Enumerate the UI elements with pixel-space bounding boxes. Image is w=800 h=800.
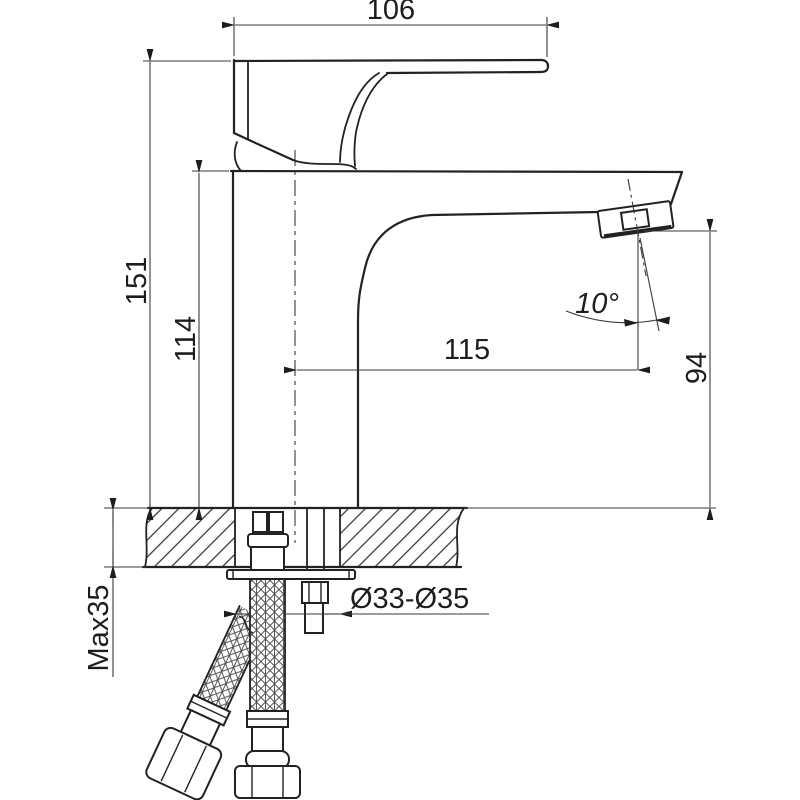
handle-lever <box>234 60 548 73</box>
handle-base-chamfer <box>234 133 293 160</box>
shank-tube <box>251 547 284 570</box>
deck-hatch-left <box>145 508 235 567</box>
deck-hatch-right <box>340 508 464 567</box>
horseshoe-washer <box>227 570 355 579</box>
dimension-max-thickness: Max35 <box>83 510 115 677</box>
body-top-edge <box>231 171 682 172</box>
cartridge-cap-left <box>235 142 241 171</box>
hose-hex-nut <box>235 766 300 798</box>
stud-lower-thread <box>305 603 323 633</box>
handle-neck-right-curve <box>354 74 387 166</box>
spout-right-slant-edge <box>671 172 682 204</box>
dimension-label-151: 151 <box>121 257 153 305</box>
dimension-label-94: 94 <box>681 352 713 384</box>
dimension-label-106: 106 <box>367 0 415 26</box>
angle-slanted-line <box>640 238 659 331</box>
dimension-body-height: 114 <box>170 171 229 507</box>
shank-inlet-port <box>253 512 267 532</box>
dimension-spout-angle: 10° <box>566 231 670 370</box>
shank-collar <box>248 534 288 547</box>
hose-braid-texture <box>250 578 285 712</box>
hose-tube <box>252 727 283 752</box>
angle-arrow <box>624 319 638 327</box>
dimension-label-diameter: Ø33-Ø35 <box>350 583 469 615</box>
dimension-spout-reach: 115 <box>297 334 637 370</box>
technical-drawing-page: 106 151 114 Max35 115 94 <box>0 0 800 800</box>
counter-deck <box>104 508 716 567</box>
dimension-label-10deg: 10° <box>575 288 619 320</box>
dimension-handle-length: 106 <box>234 0 547 57</box>
dimension-overall-height: 151 <box>121 61 231 507</box>
dimension-outlet-height: 94 <box>644 231 717 507</box>
dimension-label-max35: Max35 <box>83 584 115 671</box>
shank-inlet-port <box>269 512 283 532</box>
faucet-technical-drawing: 106 151 114 Max35 115 94 <box>0 0 800 800</box>
dimensions: 106 151 114 Max35 115 94 <box>83 0 717 677</box>
stud-hex-nut <box>302 582 328 603</box>
dimension-label-115: 115 <box>444 334 490 366</box>
angle-arrow <box>656 317 670 325</box>
cartridge-cap-top <box>293 160 356 169</box>
dimension-label-114: 114 <box>170 316 202 362</box>
